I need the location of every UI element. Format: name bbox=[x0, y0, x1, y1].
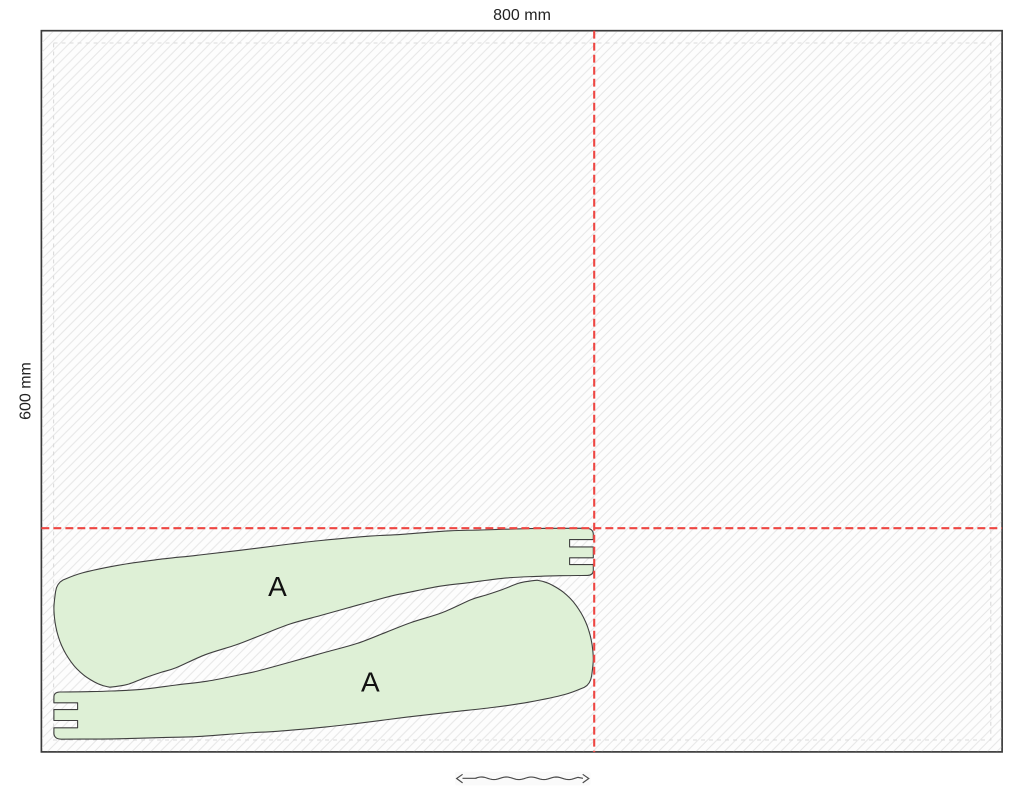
svg-text:A: A bbox=[361, 666, 380, 697]
svg-text:800 mm: 800 mm bbox=[493, 7, 551, 24]
svg-text:A: A bbox=[268, 571, 287, 602]
svg-text:600 mm: 600 mm bbox=[18, 362, 35, 420]
